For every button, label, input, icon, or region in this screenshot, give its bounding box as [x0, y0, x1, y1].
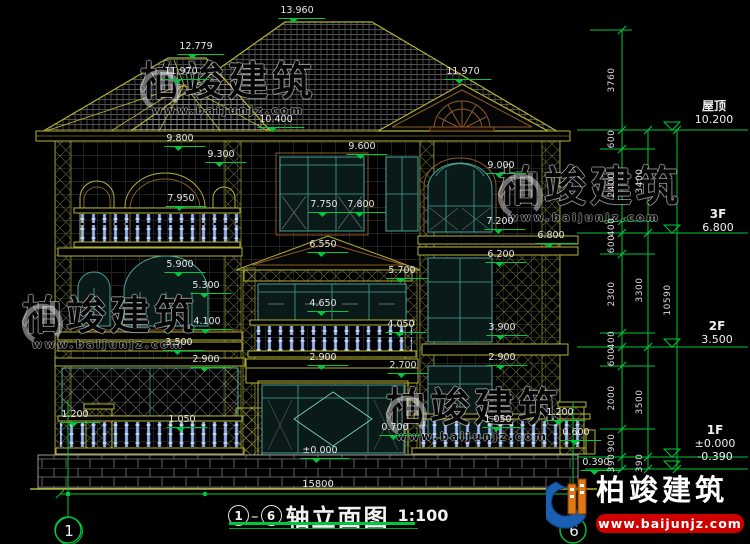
- floor-name: 2F: [688, 320, 746, 333]
- elevation-label: 4.650: [307, 299, 348, 312]
- title-underline-thin: [229, 528, 418, 529]
- site-logo-icon: [546, 472, 594, 534]
- center-3f-windows: [276, 153, 418, 235]
- elevation-label: 3.900: [486, 323, 527, 336]
- elevation-label: 7.800: [345, 200, 386, 213]
- site-logo-url: www.baijunjz.com: [596, 514, 744, 533]
- dim-chain-inner-label: 2300: [607, 282, 617, 307]
- title-underline-thick: [229, 522, 415, 525]
- floor-elevation: ±0.000: [684, 437, 746, 450]
- elevation-label: 1.050: [482, 415, 523, 428]
- dim-chain-inner-label: 900: [607, 434, 617, 453]
- elevation-label: 6.200: [485, 250, 526, 263]
- overall-dimension: 15800: [302, 479, 334, 490]
- floor-name: 1F: [684, 424, 746, 437]
- elevation-label: 4.100: [191, 317, 232, 330]
- elevation-label: 3.500: [163, 338, 204, 351]
- elevation-label: 6.800: [535, 231, 576, 244]
- floor-label-3f: 3F 6.800: [690, 208, 746, 234]
- elevation-label: 2.900: [486, 353, 527, 366]
- elevation-label: 5.300: [190, 281, 231, 294]
- dim-chain-inner-label: 400: [607, 218, 617, 237]
- dim-chain-overall-label: 10590: [663, 284, 673, 315]
- cad-elevation-drawing: 柏竣建筑 www.baijunjz.com 柏竣建筑 www.baijunjz.…: [0, 0, 750, 544]
- elevation-label: ±0.000: [300, 446, 349, 459]
- elevation-label: 11.970: [444, 67, 491, 80]
- elevation-label: 11.970: [162, 67, 209, 80]
- elevation-label: 5.900: [164, 260, 205, 273]
- elevation-label: 10.400: [257, 115, 304, 128]
- elevation-label: 13.960: [278, 6, 325, 19]
- elevation-label: 9.000: [485, 161, 526, 174]
- elevation-label: 9.800: [164, 134, 205, 147]
- floor-name: 屋顶: [682, 100, 746, 113]
- dim-chain-inner-label: 3760: [607, 68, 617, 93]
- dim-chain-inner-label: 600: [607, 348, 617, 367]
- elevation-label: 4.050: [385, 320, 426, 333]
- site-logo: 柏竣建筑 www.baijunjz.com: [546, 468, 748, 542]
- dim-chain-inner-label: 2000: [607, 386, 617, 411]
- floor-elevation: 10.200: [682, 113, 746, 126]
- elevation-label: 7.750: [308, 200, 349, 213]
- elevation-label: 2.700: [387, 361, 428, 374]
- elevation-label: 2.900: [190, 355, 231, 368]
- floor-label-roof: 屋顶 10.200: [682, 100, 746, 126]
- dim-chain-inner-label: 400: [607, 331, 617, 350]
- floor-label-2f: 2F 3.500: [688, 320, 746, 346]
- floor-elevation: 6.800: [690, 221, 746, 234]
- floor-elevation: 3.500: [688, 333, 746, 346]
- elevation-label: 9.600: [346, 142, 387, 155]
- elevation-label: 5.700: [386, 266, 427, 279]
- dim-chain-inner-label: 600: [607, 130, 617, 149]
- elevation-label: 0.600: [560, 428, 601, 441]
- dim-chain-inner-label: 600: [607, 235, 617, 254]
- site-logo-brand: 柏竣建筑: [596, 476, 728, 505]
- elevation-label: 0.700: [379, 423, 420, 436]
- elevation-label: 7.950: [165, 194, 206, 207]
- dim-chain-middle-label: 3500: [635, 390, 645, 415]
- floor-name: 3F: [690, 208, 746, 221]
- elevation-label: 6.550: [307, 240, 348, 253]
- floor-elevation-below: -0.390: [684, 450, 746, 463]
- elevation-label: 1.200: [59, 410, 100, 423]
- elevation-label: 1.200: [544, 408, 585, 421]
- dim-chain-middle-label: 3300: [635, 278, 645, 303]
- elevation-label: 7.200: [484, 217, 525, 230]
- elevation-label: 1.050: [166, 415, 207, 428]
- floor-label-1f: 1F ±0.000 -0.390: [684, 424, 746, 463]
- dim-chain-inner-label: 2400: [607, 173, 617, 198]
- elevation-label: 2.900: [307, 353, 348, 366]
- axis-bubble-1: 1: [55, 517, 83, 544]
- dim-chain-middle-label: 3400: [635, 169, 645, 194]
- elevation-label: 12.779: [177, 42, 224, 55]
- elevation-label: 9.300: [205, 150, 246, 163]
